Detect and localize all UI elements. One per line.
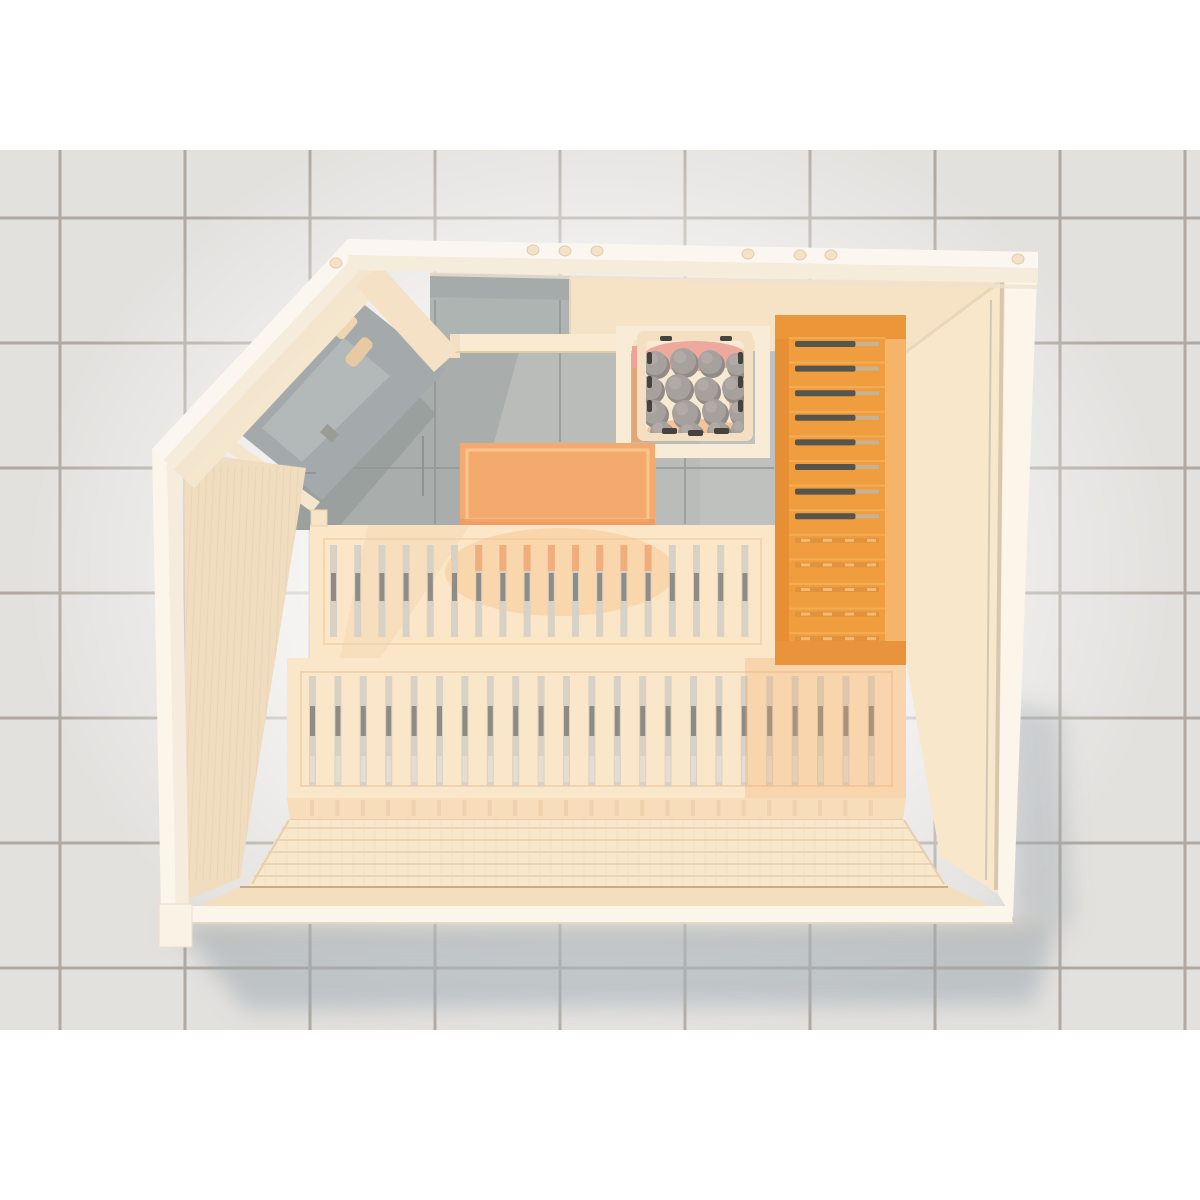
- bench-slat-gap-shadow: [404, 573, 409, 601]
- bench-slat-gap-light: [539, 756, 544, 782]
- bench-slat-gap-shadow: [691, 706, 696, 736]
- backrest-slat-gap: [795, 341, 855, 347]
- bench-slat-gap-light: [589, 756, 594, 782]
- backrest-slat-gap: [795, 439, 855, 445]
- sauna-heater[interactable]: [616, 326, 770, 458]
- bench-slat-gap-shadow: [488, 706, 493, 736]
- backrest-slat-gap: [795, 415, 855, 421]
- bench-front-tick: [310, 800, 314, 816]
- bench-slat-gap-light: [335, 756, 340, 782]
- backrest-slat-edge: [789, 460, 885, 462]
- upper-bench-post: [311, 510, 327, 526]
- roof-dowel: [742, 249, 754, 259]
- left-sill-foot: [159, 904, 192, 947]
- backrest-slat-gap: [795, 390, 855, 396]
- backrest-slat-tick: [801, 563, 810, 566]
- bench-slat-gap-light: [310, 756, 315, 782]
- bench-slat-gap-shadow: [615, 706, 620, 736]
- roof-dowel: [527, 245, 539, 255]
- bench-slat-gap-shadow: [597, 573, 602, 601]
- bench-slat-gap-shadow: [412, 706, 417, 736]
- backrest-slat-tick: [823, 613, 832, 616]
- sauna-stone: [676, 403, 689, 416]
- backrest-slat-gap: [855, 490, 879, 494]
- sauna-stone: [725, 378, 737, 390]
- sauna-stone: [674, 351, 687, 364]
- bench-slat-gap-shadow: [549, 573, 554, 601]
- backrest-slat-gap: [795, 489, 855, 495]
- backrest-slat-tick: [845, 563, 854, 566]
- upper-bench: [310, 510, 775, 658]
- backrest-slat-tick: [801, 588, 810, 591]
- backrest-slat-edge: [789, 534, 885, 536]
- bench-slat-gap-glow: [499, 545, 506, 571]
- backrest-slat-gap: [855, 342, 879, 346]
- sauna-stone: [701, 352, 713, 364]
- backrest-slat-edge: [789, 583, 885, 585]
- backrest-slat-edge: [789, 362, 885, 364]
- bench-slat-gap-shadow: [500, 573, 505, 601]
- bench-slat-gap-light: [488, 756, 493, 782]
- backrest-slat-tick: [867, 613, 876, 616]
- bench-slat-gap-light: [361, 756, 366, 782]
- backrest-slat-tick: [867, 563, 876, 566]
- bench-slat-gap-shadow: [452, 573, 457, 601]
- bench-slat-gap-shadow: [335, 706, 340, 736]
- sauna-stone: [729, 355, 740, 366]
- backrest-slat-tick: [845, 539, 854, 542]
- sauna-stone: [697, 379, 709, 391]
- bench-slat-gap-shadow: [573, 573, 578, 601]
- roof-dowel: [559, 246, 571, 256]
- backrest-slat-edge: [789, 509, 885, 511]
- backrest-slat-tick: [823, 588, 832, 591]
- backrest-slat-tick: [867, 637, 876, 640]
- sauna-stone: [733, 421, 743, 431]
- bench-slat-gap-glow: [645, 545, 652, 571]
- bench-front-tick: [513, 800, 517, 816]
- bench-front-tick: [742, 800, 746, 816]
- bench-slat-gap-shadow: [640, 706, 645, 736]
- backrest-slat-gap: [855, 391, 879, 395]
- bench-front-tick: [361, 800, 365, 816]
- backrest-slat-gap: [795, 366, 855, 372]
- bench-slat-gap-shadow: [670, 573, 675, 601]
- backrest-slat-edge: [789, 632, 885, 634]
- bench-slat-gap-light: [386, 756, 391, 782]
- backrest-slat-gap: [855, 416, 879, 420]
- bench-front-tick: [488, 800, 492, 816]
- bench-slat-gap-shadow: [379, 573, 384, 601]
- roof-dowel: [1012, 254, 1024, 264]
- bench-slat-gap-light: [513, 756, 518, 782]
- backrest-slat-tick: [867, 588, 876, 591]
- bench-slat-gap-shadow: [437, 706, 442, 736]
- backrest-slat-gap: [855, 514, 879, 518]
- roof-dowel: [591, 246, 603, 256]
- bench-front-tick: [564, 800, 568, 816]
- sauna-stone: [705, 401, 717, 413]
- backrest-slat-tick: [823, 563, 832, 566]
- backrest-slat-tick: [845, 613, 854, 616]
- backrest-slat-tick: [823, 539, 832, 542]
- accessory-panel-highlighted[interactable]: [460, 443, 655, 527]
- backrest-slat-tick: [823, 637, 832, 640]
- bench-front-tick: [386, 800, 390, 816]
- bench-slat-gap-shadow: [716, 706, 721, 736]
- bench-slat-gap-shadow: [355, 573, 360, 601]
- lower-bench-tint: [745, 658, 906, 798]
- bench-front-tick: [640, 800, 644, 816]
- bench-slat-gap-shadow: [310, 706, 315, 736]
- bench-slat-gap-light: [691, 756, 696, 782]
- bench-slat-gap-glow: [596, 545, 603, 571]
- backrest-slat-tick: [801, 637, 810, 640]
- roof-dowel: [330, 258, 342, 268]
- roof-dowel: [825, 250, 837, 260]
- roof-dowel: [794, 250, 806, 260]
- bench-slat-gap-glow: [524, 545, 531, 571]
- sauna-configurator-render: [0, 0, 1200, 1200]
- backrest-slat-edge: [789, 608, 885, 610]
- bench-slat-gap-shadow: [428, 573, 433, 601]
- bench-slat-gap-shadow: [742, 573, 747, 601]
- bench-slat-gap-shadow: [666, 706, 671, 736]
- bench-slat-gap-shadow: [539, 706, 544, 736]
- lower-bench-front-face: [287, 798, 906, 820]
- backrest-slat-tick: [845, 637, 854, 640]
- bench-front-tick: [412, 800, 416, 816]
- backrest-slat-edge: [789, 485, 885, 487]
- backrest-slat-gap: [795, 464, 855, 470]
- bench-slat-gap-shadow: [621, 573, 626, 601]
- bench-front-tick: [539, 800, 543, 816]
- backrest-slat-gap: [855, 440, 879, 444]
- bench-front-tick: [335, 800, 339, 816]
- bench-slat-gap-shadow: [513, 706, 518, 736]
- backrest-slat-gap: [855, 465, 879, 469]
- bench-slat-gap-shadow: [564, 706, 569, 736]
- bench-front-tick: [691, 800, 695, 816]
- bench-front-tick: [818, 800, 822, 816]
- bench-slat-gap-light: [716, 756, 721, 782]
- backrest-slat-tick: [845, 588, 854, 591]
- bench-front-tick: [767, 800, 771, 816]
- backrest-slat-tick: [801, 539, 810, 542]
- lower-bench: [287, 658, 906, 820]
- backrest-slat-gap: [855, 367, 879, 371]
- sauna-stone: [669, 377, 682, 390]
- bench-slat-gap-shadow: [331, 573, 336, 601]
- bench-slat-gap-shadow: [646, 573, 651, 601]
- bench-slat-gap-glow: [475, 545, 482, 571]
- backrest-slat-edge: [789, 558, 885, 560]
- bench-slat-gap-shadow: [694, 573, 699, 601]
- bench-front-tick: [437, 800, 441, 816]
- sauna-stone: [653, 423, 664, 434]
- bench-slat-gap-light: [437, 756, 442, 782]
- backrest-slat-tick: [867, 539, 876, 542]
- bench-slat-gap-light: [666, 756, 671, 782]
- backrest-slat-gap: [795, 513, 855, 519]
- bench-slat-gap-light: [615, 756, 620, 782]
- bench-slat-gap-shadow: [462, 706, 467, 736]
- bench-slat-gap-glow: [620, 545, 627, 571]
- bench-slat-gap-shadow: [589, 706, 594, 736]
- bench-front-tick: [869, 800, 873, 816]
- wood-floor: [245, 820, 948, 886]
- bench-slat-gap-light: [412, 756, 417, 782]
- bench-front-tick: [793, 800, 797, 816]
- bench-front-tick: [615, 800, 619, 816]
- bench-slat-gap-glow: [572, 545, 579, 571]
- bench-slat-gap-light: [564, 756, 569, 782]
- bench-front-tick: [589, 800, 593, 816]
- bench-front-tick: [716, 800, 720, 816]
- bottom-sill: [160, 906, 1013, 924]
- bench-slat-gap-shadow: [476, 573, 481, 601]
- backrest-slat-tick: [801, 613, 810, 616]
- backrest-slat-edge: [789, 337, 885, 339]
- bench-front-tick: [666, 800, 670, 816]
- backrest-slat-edge: [789, 435, 885, 437]
- bench-slat-gap-shadow: [525, 573, 530, 601]
- bench-slat-gap-shadow: [386, 706, 391, 736]
- bench-slat-gap-shadow: [361, 706, 366, 736]
- backrest-slat-edge: [789, 411, 885, 413]
- bench-front-tick: [462, 800, 466, 816]
- right-wall-backrest-bench-highlighted[interactable]: [775, 315, 906, 665]
- bench-slat-gap-shadow: [718, 573, 723, 601]
- bench-slat-gap-light: [640, 756, 645, 782]
- bench-slat-gap-light: [462, 756, 467, 782]
- backrest-slat-edge: [789, 386, 885, 388]
- bench-slat-gap-glow: [548, 545, 555, 571]
- bench-front-tick: [843, 800, 847, 816]
